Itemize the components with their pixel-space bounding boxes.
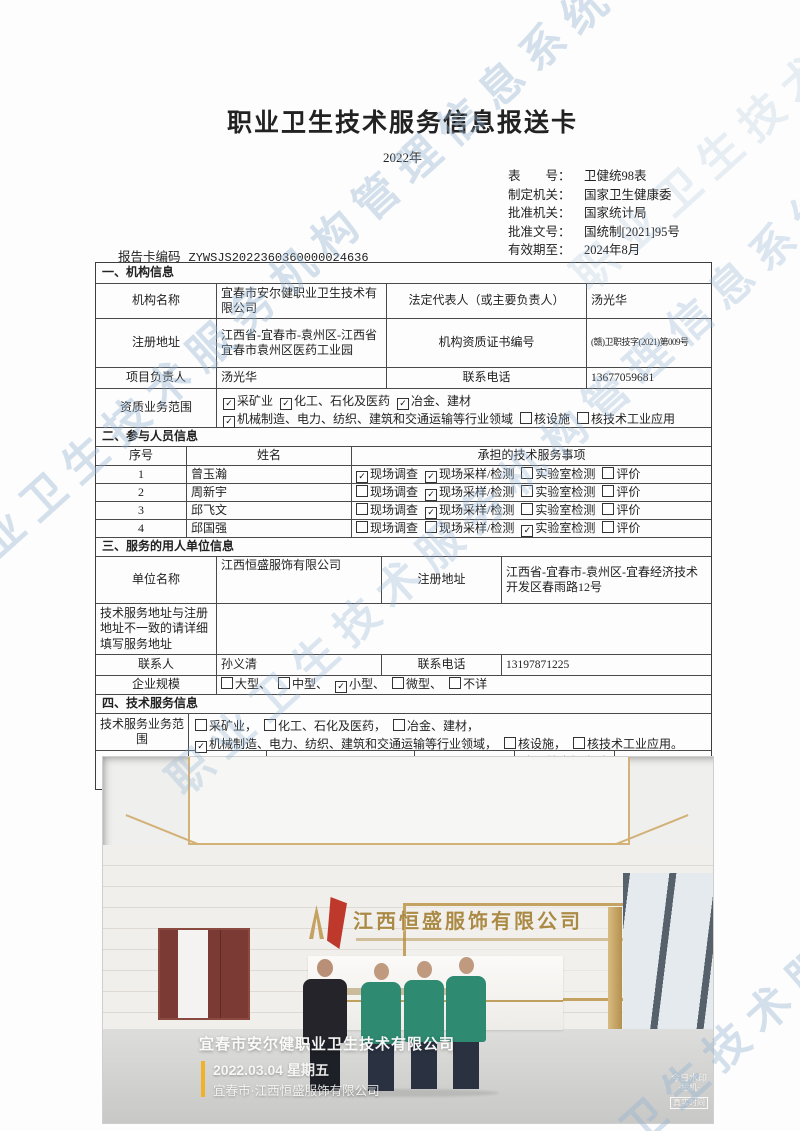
meta-row: 有效期至：2024年8月 — [508, 241, 680, 260]
watermark-camera-app-badge: 今日水印 -相机- 真实时间 — [670, 1073, 708, 1110]
checkbox-label: 中型、 — [292, 677, 328, 691]
section2-header: 二、参与人员信息 — [96, 428, 711, 446]
section1-header-row: 一、机构信息 — [96, 263, 711, 283]
checkbox-option: ✓现场采样/检测 — [425, 503, 514, 519]
project-manager-value: 汤光华 — [216, 368, 386, 388]
checkbox-label: 核设施， — [518, 737, 566, 751]
col-name: 姓名 — [186, 447, 351, 465]
legal-rep-label: 法定代表人（或主要负责人） — [386, 284, 586, 318]
section3-header-row: 三、服务的用人单位信息 — [96, 537, 711, 556]
checkbox-label: 核设施 — [534, 412, 570, 426]
contact-label: 联系人 — [96, 655, 216, 675]
checkbox-checked-icon: ✓ — [223, 416, 235, 428]
site-photo: 江西恒盛服饰有限公司 — [102, 756, 714, 1124]
checkbox-option: 采矿业， — [195, 719, 257, 733]
checkbox-unchecked-icon — [521, 467, 533, 479]
checkbox-checked-icon: ✓ — [356, 471, 368, 483]
checkbox-option: 实验室检测 — [521, 485, 595, 500]
phone2-label: 联系电话 — [381, 655, 501, 675]
checkbox-option: 评价 — [602, 521, 640, 536]
checkbox-label: 核技术工业应用。 — [587, 737, 683, 751]
checkbox-label: 评价 — [616, 521, 640, 535]
meta-row: 批准机关：国家统计局 — [508, 204, 680, 223]
enterprise-scale-row: 企业规模 大型、中型、✓小型、微型、不详 — [96, 675, 711, 694]
door-split-line — [220, 930, 221, 1018]
checkbox-label: 评价 — [616, 485, 640, 499]
checkbox-label: 机械制造、电力、纺织、建筑和交通运输等行业领域， — [209, 737, 497, 751]
person-legs — [453, 1042, 479, 1089]
cert-no-label: 机构资质证书编号 — [386, 319, 586, 367]
meta-value: 国家统计局 — [584, 206, 647, 220]
unit-addr-label: 注册地址 — [381, 557, 501, 603]
person-services: 现场调查✓现场采样/检测实验室检测评价 — [351, 484, 711, 501]
checkbox-label: 化工、石化及医药 — [294, 394, 390, 408]
checkbox-label: 实验室检测 — [535, 521, 595, 535]
checkbox-unchecked-icon — [521, 485, 533, 497]
checkbox-label: 不详 — [463, 677, 487, 691]
checkbox-label: 采矿业 — [237, 394, 273, 408]
checkbox-label: 现场调查 — [370, 503, 418, 517]
gold-pillar — [608, 907, 622, 1033]
meta-label: 有效期至： — [508, 241, 584, 260]
checkbox-option: ✓现场调查 — [356, 467, 418, 483]
personnel-header-row: 序号 姓名 承担的技术服务事项 — [96, 446, 711, 465]
checkbox-option: 现场调查 — [356, 503, 418, 518]
checkbox-unchecked-icon — [521, 503, 533, 515]
photo-overlay-accent-bar — [201, 1061, 205, 1097]
checkbox-option: 核设施 — [520, 412, 570, 426]
wall-sign-subtitle-strip — [356, 938, 624, 941]
enterprise-scale-label: 企业规模 — [96, 676, 216, 694]
checkbox-option: 现场调查 — [356, 485, 418, 500]
qualification-scope-label: 资质业务范围 — [96, 389, 216, 427]
checkbox-unchecked-icon — [195, 719, 207, 731]
checkbox-option: ✓现场采样/检测 — [425, 485, 514, 501]
service-address-label: 技术服务地址与注册地址不一致的请详细填写服务地址 — [96, 604, 216, 654]
checkbox-option: ✓实验室检测 — [521, 521, 595, 537]
checkbox-option: 评价 — [602, 467, 640, 482]
person-seq: 2 — [96, 484, 186, 501]
person-services: ✓现场调查✓现场采样/检测实验室检测评价 — [351, 466, 711, 483]
checkbox-option: 实验室检测 — [521, 503, 595, 518]
checkbox-unchecked-icon — [356, 521, 368, 533]
checkbox-unchecked-icon — [573, 737, 585, 749]
checkbox-option: ✓机械制造、电力、纺织、建筑和交通运输等行业领域 — [223, 412, 513, 426]
form-table: 一、机构信息 机构名称 宜春市安尔健职业卫生技术有限公司 法定代表人（或主要负责… — [95, 262, 712, 790]
checkbox-unchecked-icon — [577, 412, 589, 424]
person-name: 周新宇 — [186, 484, 351, 501]
checkbox-unchecked-icon — [602, 467, 614, 479]
checkbox-unchecked-icon — [393, 719, 405, 731]
meta-label: 批准文号： — [508, 223, 584, 242]
checkbox-label: 微型、 — [406, 677, 442, 691]
checkbox-option: 中型、 — [278, 677, 328, 692]
checkbox-checked-icon: ✓ — [425, 507, 437, 519]
contact-row: 联系人 孙义清 联系电话 13197871225 — [96, 654, 711, 675]
checkbox-option: 化工、石化及医药， — [264, 719, 386, 733]
qualification-scope-row: 资质业务范围 ✓采矿业✓化工、石化及医药✓冶金、建材✓机械制造、电力、纺织、建筑… — [96, 388, 711, 427]
legal-rep-value: 汤光华 — [586, 284, 711, 318]
reg-address-value: 江西省-宜春市-袁州区-江西省宜春市袁州区医药工业园 — [216, 319, 386, 367]
person-green-uniform — [358, 963, 404, 1091]
person-name: 曾玉瀚 — [186, 466, 351, 483]
checkbox-label: 现场采样/检测 — [439, 521, 514, 535]
checkbox-unchecked-icon — [356, 485, 368, 497]
reg-address-label: 注册地址 — [96, 319, 216, 367]
cert-no-value: (赣)卫职技字(2021)第009号 — [586, 319, 711, 367]
checkbox-label: 核技术工业应用 — [591, 412, 675, 426]
phone2-value: 13197871225 — [501, 655, 711, 675]
photo-overlay-location: 宜春市·江西恒盛服饰有限公司 — [213, 1080, 380, 1099]
service-address-value — [216, 604, 711, 654]
form-meta-block: 表 号：卫健统98表 制定机关：国家卫生健康委 批准机关：国家统计局 批准文号：… — [508, 167, 680, 260]
checkbox-label: 机械制造、电力、纺织、建筑和交通运输等行业领域 — [237, 412, 513, 426]
checkbox-label: 小型、 — [349, 677, 385, 691]
project-manager-label: 项目负责人 — [96, 368, 216, 388]
person-head — [459, 957, 474, 974]
checkbox-checked-icon: ✓ — [521, 525, 533, 537]
person-services: 现场调查✓现场采样/检测实验室检测评价 — [351, 502, 711, 519]
checkbox-unchecked-icon — [278, 677, 290, 689]
meta-label: 制定机关： — [508, 186, 584, 205]
photo-overlay-company: 宜春市安尔健职业卫生技术有限公司 — [199, 1033, 455, 1054]
side-window — [623, 873, 713, 1041]
meta-label: 批准机关： — [508, 204, 584, 223]
checkbox-label: 冶金、建材 — [411, 394, 471, 408]
meta-row: 批准文号：国统制[2021]95号 — [508, 223, 680, 242]
ceiling-tray — [188, 756, 630, 845]
personnel-row: 3 邱飞文 现场调查✓现场采样/检测实验室检测评价 — [96, 501, 711, 519]
checkbox-option: ✓机械制造、电力、纺织、建筑和交通运输等行业领域， — [195, 737, 497, 751]
checkbox-option: 微型、 — [392, 677, 442, 692]
checkbox-option: 实验室检测 — [521, 467, 595, 482]
person-name: 邱国强 — [186, 520, 351, 537]
section2-header-row: 二、参与人员信息 — [96, 427, 711, 446]
entrance-door — [158, 928, 250, 1020]
meta-value: 2024年8月 — [584, 243, 640, 257]
wall-company-sign: 江西恒盛服饰有限公司 — [353, 905, 583, 934]
meta-label: 表 号： — [508, 167, 584, 186]
checkbox-unchecked-icon — [449, 677, 461, 689]
checkbox-option: 评价 — [602, 503, 640, 518]
project-manager-row: 项目负责人 汤光华 联系电话 13677059681 — [96, 367, 711, 388]
checkbox-label: 评价 — [616, 467, 640, 481]
checkbox-option: 评价 — [602, 485, 640, 500]
checkbox-label: 现场采样/检测 — [439, 467, 514, 481]
section4-header-row: 四、技术服务信息 — [96, 694, 711, 713]
checkbox-label: 实验室检测 — [535, 485, 595, 499]
personnel-row: 1 曾玉瀚 ✓现场调查✓现场采样/检测实验室检测评价 — [96, 465, 711, 483]
checkbox-unchecked-icon — [356, 503, 368, 515]
checkbox-checked-icon: ✓ — [335, 681, 347, 693]
person-green-uniform — [443, 957, 489, 1089]
qualification-scope-checklist: ✓采矿业✓化工、石化及医药✓冶金、建材✓机械制造、电力、纺织、建筑和交通运输等行… — [216, 389, 711, 427]
checkbox-checked-icon: ✓ — [425, 489, 437, 501]
checkbox-unchecked-icon — [520, 412, 532, 424]
checkbox-option: 现场调查 — [356, 521, 418, 536]
section1-header: 一、机构信息 — [96, 263, 711, 283]
checkbox-option: ✓小型、 — [335, 677, 385, 693]
reg-address-row: 注册地址 江西省-宜春市-袁州区-江西省宜春市袁州区医药工业园 机构资质证书编号… — [96, 318, 711, 367]
page-title: 职业卫生技术服务信息报送卡 — [95, 103, 710, 139]
person-seq: 4 — [96, 520, 186, 537]
person-services: 现场调查现场采样/检测✓实验室检测评价 — [351, 520, 711, 537]
checkbox-option: ✓化工、石化及医药 — [280, 394, 390, 408]
org-name-row: 机构名称 宜春市安尔健职业卫生技术有限公司 法定代表人（或主要负责人） 汤光华 — [96, 283, 711, 318]
service-scope-checklist: 采矿业，化工、石化及医药，冶金、建材，✓机械制造、电力、纺织、建筑和交通运输等行… — [188, 714, 711, 750]
checkbox-checked-icon: ✓ — [223, 398, 235, 410]
checkbox-checked-icon: ✓ — [425, 471, 437, 483]
person-head — [317, 959, 333, 977]
meta-value: 国家卫生健康委 — [584, 188, 672, 202]
unit-name-row: 单位名称 江西恒盛服饰有限公司 注册地址 江西省-宜春市-袁州区-宜春经济技术开… — [96, 556, 711, 603]
service-scope-row: 技术服务业务范围 采矿业，化工、石化及医药，冶金、建材，✓机械制造、电力、纺织、… — [96, 713, 711, 750]
service-address-row: 技术服务地址与注册地址不一致的请详细填写服务地址 — [96, 603, 711, 654]
checkbox-unchecked-icon — [392, 677, 404, 689]
person-seq: 3 — [96, 502, 186, 519]
col-services: 承担的技术服务事项 — [351, 447, 711, 465]
section4-header: 四、技术服务信息 — [96, 695, 711, 713]
checkbox-label: 现场调查 — [370, 467, 418, 481]
checkbox-option: 冶金、建材， — [393, 719, 479, 733]
checkbox-unchecked-icon — [602, 503, 614, 515]
checkbox-unchecked-icon — [602, 521, 614, 533]
checkbox-unchecked-icon — [221, 677, 233, 689]
checkbox-label: 实验室检测 — [535, 467, 595, 481]
checkbox-unchecked-icon — [504, 737, 516, 749]
checkbox-unchecked-icon — [602, 485, 614, 497]
enterprise-scale-checklist: 大型、中型、✓小型、微型、不详 — [216, 676, 711, 694]
door-opening — [178, 930, 208, 1018]
meta-row: 制定机关：国家卫生健康委 — [508, 186, 680, 205]
person-green-uniform — [401, 961, 447, 1089]
checkbox-option: 不详 — [449, 677, 487, 692]
checkbox-label: 现场采样/检测 — [439, 485, 514, 499]
checkbox-label: 现场调查 — [370, 485, 418, 499]
person-head — [417, 961, 432, 978]
checkbox-unchecked-icon — [425, 521, 437, 533]
meta-value: 卫健统98表 — [584, 169, 647, 183]
checkbox-label: 评价 — [616, 503, 640, 517]
personnel-row: 2 周新宇 现场调查✓现场采样/检测实验室检测评价 — [96, 483, 711, 501]
checkbox-unchecked-icon — [264, 719, 276, 731]
checkbox-option: ✓现场采样/检测 — [425, 467, 514, 483]
checkbox-label: 现场采样/检测 — [439, 503, 514, 517]
checkbox-label: 采矿业， — [209, 719, 257, 733]
meta-value: 国统制[2021]95号 — [584, 225, 680, 239]
checkbox-label: 化工、石化及医药， — [278, 719, 386, 733]
person-name: 邱飞文 — [186, 502, 351, 519]
unit-name-label: 单位名称 — [96, 557, 216, 603]
checkbox-option: 核设施， — [504, 737, 566, 751]
checkbox-option: ✓冶金、建材 — [397, 394, 471, 408]
phone1-label: 联系电话 — [386, 368, 586, 388]
app-wm-line1: 今日水印 — [670, 1073, 708, 1083]
checkbox-label: 大型、 — [235, 677, 271, 691]
checkbox-label: 现场调查 — [370, 521, 418, 535]
col-seq: 序号 — [96, 447, 186, 465]
scanned-report-page: 职业卫生技术服务机构管理信息系统 职业卫生技术服务机构管理信息系统 职业卫生技术… — [0, 0, 800, 1131]
checkbox-option: 现场采样/检测 — [425, 521, 514, 536]
unit-name-value: 江西恒盛服饰有限公司 — [216, 557, 381, 603]
phone1-value: 13677059681 — [586, 368, 711, 388]
app-wm-line2: -相机- — [670, 1083, 708, 1092]
service-scope-label: 技术服务业务范围 — [96, 714, 188, 750]
checkbox-option: 大型、 — [221, 677, 271, 692]
photo-overlay-date: 2022.03.04 星期五 — [213, 1060, 329, 1080]
page-year: 2022年 — [95, 147, 710, 166]
contact-value: 孙义清 — [216, 655, 381, 675]
checkbox-option: 核技术工业应用 — [577, 412, 675, 426]
section3-header: 三、服务的用人单位信息 — [96, 538, 711, 556]
personnel-row: 4 邱国强 现场调查现场采样/检测✓实验室检测评价 — [96, 519, 711, 537]
checkbox-checked-icon: ✓ — [280, 398, 292, 410]
unit-addr-value: 江西省-宜春市-袁州区-宜春经济技术开发区春雨路12号 — [501, 557, 711, 603]
checkbox-label: 实验室检测 — [535, 503, 595, 517]
checkbox-label: 冶金、建材， — [407, 719, 479, 733]
checkbox-option: 核技术工业应用。 — [573, 737, 683, 751]
meta-row: 表 号：卫健统98表 — [508, 167, 680, 186]
checkbox-option: ✓采矿业 — [223, 394, 273, 408]
org-name-label: 机构名称 — [96, 284, 216, 318]
person-head — [374, 963, 389, 980]
app-wm-line3: 真实时间 — [670, 1097, 708, 1109]
org-name-value: 宜春市安尔健职业卫生技术有限公司 — [216, 284, 386, 318]
person-seq: 1 — [96, 466, 186, 483]
checkbox-checked-icon: ✓ — [397, 398, 409, 410]
